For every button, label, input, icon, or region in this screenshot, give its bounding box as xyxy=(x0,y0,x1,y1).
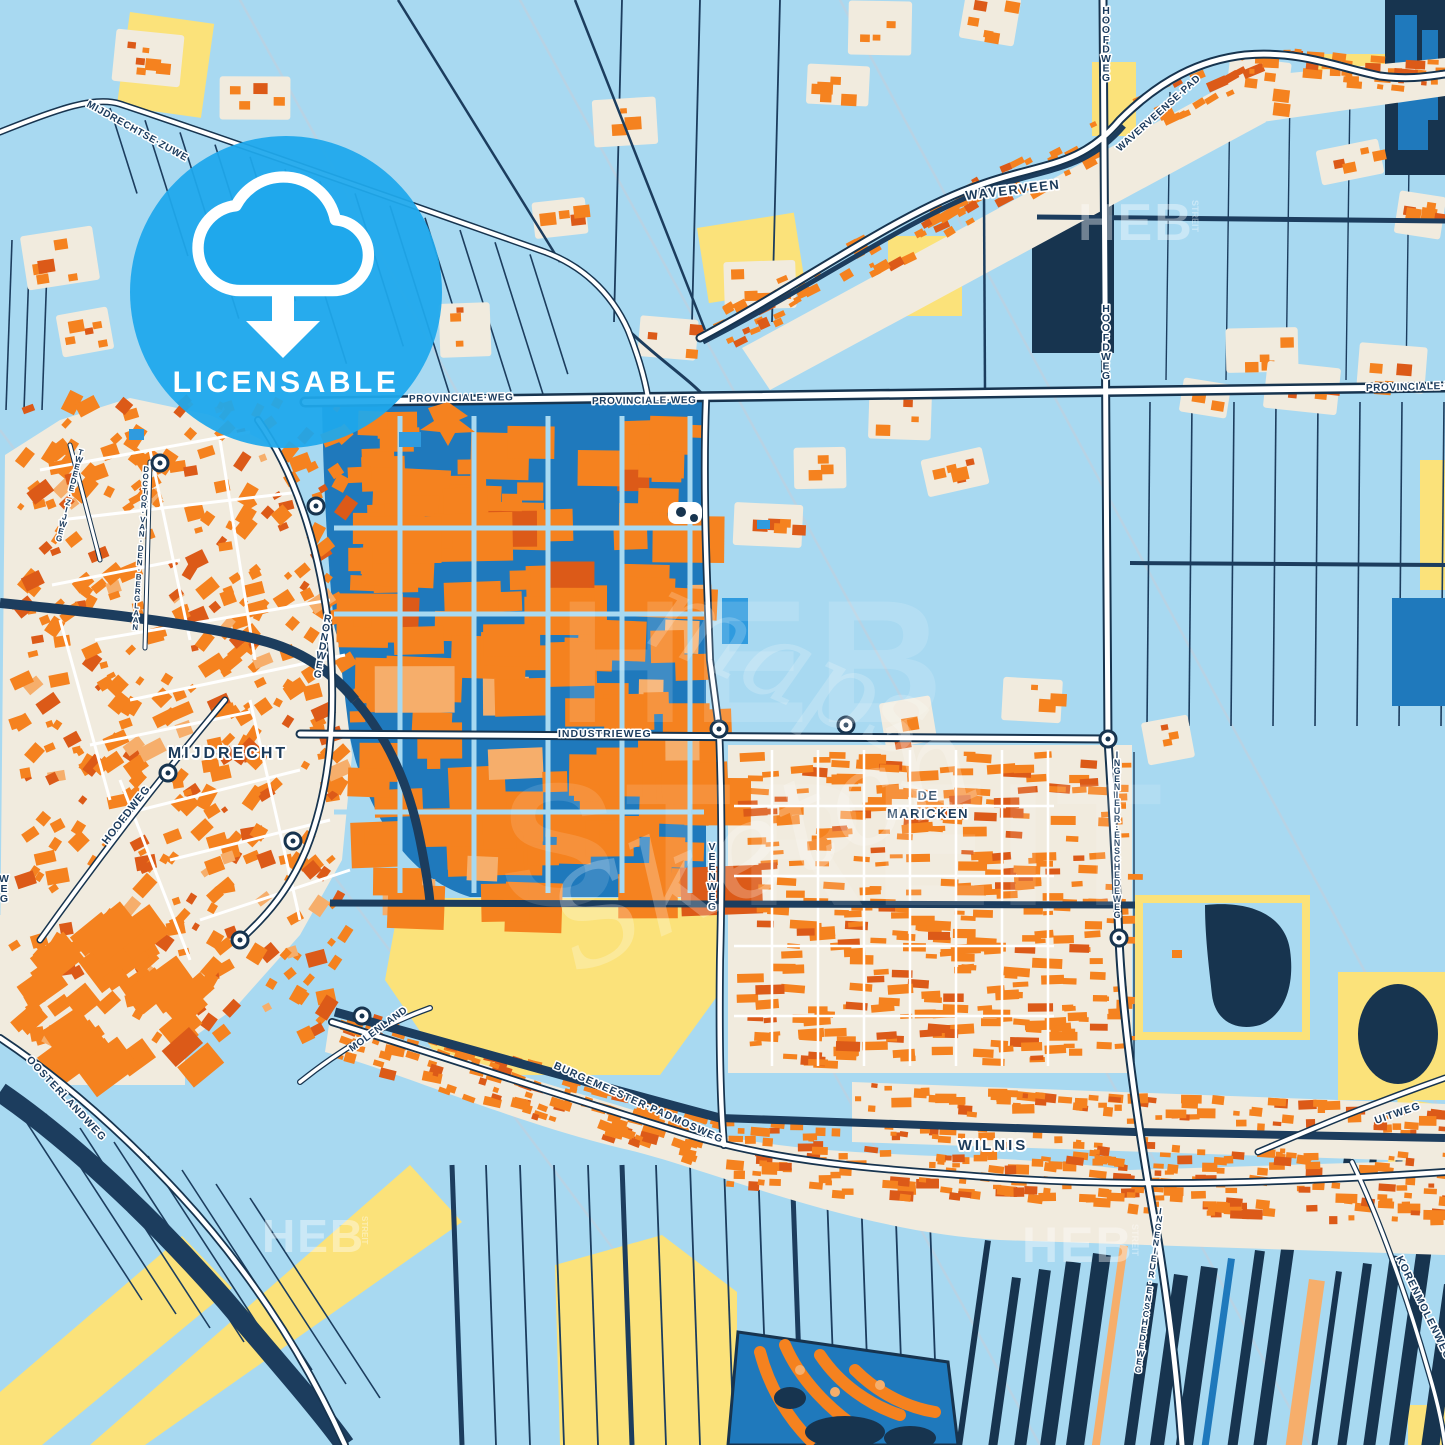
building xyxy=(769,1179,781,1186)
building xyxy=(731,269,744,279)
building xyxy=(1197,1149,1205,1155)
building xyxy=(803,1133,817,1140)
building xyxy=(737,994,759,1003)
building xyxy=(1166,1110,1187,1119)
building xyxy=(750,1127,770,1137)
building xyxy=(510,570,531,590)
building xyxy=(813,1141,823,1147)
building xyxy=(1203,1201,1216,1207)
building xyxy=(1299,1187,1311,1193)
building xyxy=(860,34,870,42)
svg-text:STREIT: STREIT xyxy=(1190,200,1200,233)
building xyxy=(365,823,399,845)
building xyxy=(467,856,499,882)
building xyxy=(1378,1183,1396,1191)
building xyxy=(1378,1201,1394,1209)
building xyxy=(997,1187,1002,1191)
building xyxy=(1094,1156,1108,1165)
building xyxy=(811,84,825,95)
building xyxy=(1397,1151,1408,1158)
building xyxy=(253,83,267,94)
road-label-provinciale-weg-2: PROVINCIALE·WEG xyxy=(592,395,697,407)
building xyxy=(855,1096,861,1101)
building xyxy=(638,450,684,478)
building xyxy=(755,999,779,1010)
building xyxy=(1114,1105,1121,1111)
building xyxy=(620,108,627,114)
building xyxy=(1212,1095,1225,1105)
watermark-corner-bottom-right: HEB STREIT xyxy=(1022,1217,1140,1273)
building xyxy=(836,1053,856,1060)
building xyxy=(1396,363,1412,376)
building xyxy=(1419,1116,1437,1126)
building xyxy=(745,1136,756,1144)
building xyxy=(921,1087,930,1096)
building xyxy=(559,210,570,219)
building xyxy=(871,1083,878,1088)
building xyxy=(375,666,455,713)
building xyxy=(1079,1017,1089,1022)
building xyxy=(783,1054,797,1060)
building xyxy=(1094,1149,1100,1154)
building xyxy=(127,41,136,48)
building xyxy=(819,1175,832,1183)
building xyxy=(936,1154,947,1163)
building xyxy=(1004,1191,1010,1196)
building xyxy=(682,425,704,438)
building xyxy=(750,1041,762,1047)
building xyxy=(762,1138,773,1147)
building xyxy=(36,273,49,284)
building xyxy=(891,1132,897,1136)
building xyxy=(818,455,829,464)
building xyxy=(1127,1204,1138,1215)
building xyxy=(1393,1123,1402,1130)
building xyxy=(1388,1156,1394,1161)
building xyxy=(1225,1188,1237,1193)
building xyxy=(919,1029,941,1037)
building xyxy=(726,1181,734,1187)
building xyxy=(932,1047,953,1056)
building xyxy=(1370,55,1385,63)
building xyxy=(417,722,462,758)
building xyxy=(1021,1042,1042,1051)
svg-text:HEB: HEB xyxy=(262,1210,365,1262)
svg-text:HEB: HEB xyxy=(1078,194,1194,252)
building xyxy=(952,1163,960,1167)
building xyxy=(1022,1093,1028,1098)
farm-parcel xyxy=(20,225,100,290)
building xyxy=(1262,1208,1275,1217)
download-arrow-stem xyxy=(272,295,294,323)
building xyxy=(19,767,31,778)
building xyxy=(440,537,453,549)
building xyxy=(1428,1183,1434,1187)
building xyxy=(1335,1193,1357,1203)
building xyxy=(1090,958,1103,964)
building xyxy=(792,525,806,536)
building xyxy=(1062,1029,1075,1034)
building xyxy=(748,1181,759,1191)
watermark-corner-top-right: HEB STREIT xyxy=(1078,194,1200,252)
building xyxy=(932,1134,939,1140)
building xyxy=(1214,1157,1228,1166)
building xyxy=(1249,69,1254,74)
building xyxy=(830,76,841,85)
building xyxy=(456,341,464,347)
building xyxy=(744,291,757,301)
building xyxy=(938,1136,951,1143)
building xyxy=(1155,1115,1162,1120)
building xyxy=(850,955,874,965)
building xyxy=(1273,102,1291,117)
building xyxy=(1436,1110,1445,1121)
building xyxy=(68,273,78,281)
building xyxy=(1211,400,1225,412)
building xyxy=(1013,1103,1021,1109)
building xyxy=(1262,58,1279,68)
building xyxy=(1404,1193,1412,1199)
building xyxy=(1273,1121,1282,1126)
building xyxy=(1013,1187,1024,1197)
building xyxy=(142,47,149,53)
map-poster: #g-yellow rect,#g-yellow polygon{fill:#F… xyxy=(0,0,1445,1445)
building xyxy=(737,973,764,983)
building xyxy=(1411,1210,1420,1215)
building xyxy=(824,1028,846,1037)
building xyxy=(1076,1140,1082,1145)
building xyxy=(929,1095,937,1103)
building xyxy=(1090,972,1106,980)
building xyxy=(1421,81,1427,86)
farm-parcel xyxy=(439,302,492,358)
building xyxy=(874,969,889,975)
building xyxy=(1043,1188,1051,1194)
building xyxy=(1313,1100,1327,1107)
building xyxy=(1296,1154,1311,1165)
building xyxy=(1282,1114,1294,1123)
building xyxy=(136,67,146,75)
building xyxy=(809,470,823,481)
building xyxy=(926,1179,939,1188)
building xyxy=(841,94,857,107)
building xyxy=(1107,1193,1125,1202)
building xyxy=(502,494,522,512)
building xyxy=(1035,1092,1046,1099)
building xyxy=(758,1179,765,1186)
building xyxy=(1280,337,1294,348)
building xyxy=(427,757,440,769)
building xyxy=(1069,944,1089,953)
building xyxy=(239,101,250,109)
building xyxy=(769,1128,780,1134)
building xyxy=(876,424,891,436)
building xyxy=(781,951,802,959)
map-image[interactable]: #g-yellow rect,#g-yellow polygon{fill:#F… xyxy=(0,0,1445,1445)
building xyxy=(1405,60,1425,70)
building xyxy=(820,93,832,102)
building xyxy=(780,519,791,528)
building xyxy=(951,954,975,962)
building xyxy=(1438,1126,1445,1131)
building xyxy=(1207,1211,1215,1216)
svg-text:HEB: HEB xyxy=(1022,1217,1134,1273)
building xyxy=(812,1147,828,1155)
building xyxy=(1377,84,1384,90)
building xyxy=(903,400,913,408)
building xyxy=(230,86,241,94)
building xyxy=(456,307,463,313)
city-label-wilnis: WILNIS xyxy=(958,1137,1029,1154)
building xyxy=(1153,1163,1164,1168)
road-label-hoofdweg-mid: HOOFDWEG xyxy=(1101,303,1111,382)
building xyxy=(498,591,522,611)
building xyxy=(899,1194,911,1202)
building xyxy=(1177,1155,1192,1164)
building xyxy=(1064,1006,1076,1012)
building xyxy=(929,1162,936,1168)
building xyxy=(1423,1210,1445,1220)
building xyxy=(1064,1044,1075,1049)
building xyxy=(274,97,285,106)
building xyxy=(880,1150,892,1157)
building xyxy=(974,1155,988,1162)
building xyxy=(1079,1194,1096,1203)
building xyxy=(1231,1151,1244,1159)
building xyxy=(1058,1096,1072,1103)
building xyxy=(839,1153,848,1160)
building xyxy=(1249,1109,1256,1116)
building xyxy=(1426,202,1436,210)
building xyxy=(1233,1111,1240,1116)
building xyxy=(867,976,884,983)
svg-text:STREIT: STREIT xyxy=(360,1216,369,1245)
building xyxy=(1329,1216,1337,1224)
building xyxy=(876,1031,897,1040)
building xyxy=(1392,1216,1398,1221)
building xyxy=(884,1086,892,1091)
building xyxy=(911,416,919,422)
building xyxy=(613,528,647,551)
building xyxy=(973,1048,994,1058)
building xyxy=(402,495,439,517)
building xyxy=(1090,1024,1108,1031)
building xyxy=(1073,1102,1083,1111)
building xyxy=(1369,363,1382,374)
licensable-badge: LICENSABLE xyxy=(130,136,442,448)
building xyxy=(1264,72,1276,82)
building xyxy=(1242,1209,1263,1220)
building xyxy=(1276,1152,1283,1157)
building xyxy=(1302,68,1322,79)
building xyxy=(868,1105,876,1112)
building xyxy=(1348,76,1359,83)
building xyxy=(1244,78,1257,89)
building xyxy=(1245,362,1259,373)
building xyxy=(1165,1170,1174,1174)
road-label-provinciale-weg-1: PROVINCIALE·WEG xyxy=(409,392,514,405)
building xyxy=(1050,693,1067,706)
building xyxy=(790,1124,803,1130)
building xyxy=(949,1097,965,1105)
building xyxy=(943,993,963,1001)
building xyxy=(1272,88,1290,103)
building xyxy=(899,1131,908,1137)
building xyxy=(1217,1168,1225,1174)
building xyxy=(1160,1152,1171,1157)
building xyxy=(1155,1170,1162,1176)
building xyxy=(1312,1184,1324,1190)
building xyxy=(1260,354,1270,362)
building xyxy=(136,58,146,66)
building xyxy=(483,624,540,657)
building xyxy=(1096,1042,1111,1050)
badge-label: LICENSABLE xyxy=(173,366,400,399)
building xyxy=(821,464,834,474)
building xyxy=(348,466,372,483)
building xyxy=(347,767,390,797)
building xyxy=(1404,1122,1419,1130)
farm-parcel xyxy=(793,447,846,489)
farm-parcel xyxy=(111,29,184,88)
building xyxy=(1236,1120,1247,1127)
building xyxy=(494,678,549,717)
building xyxy=(443,486,489,514)
building xyxy=(1331,1182,1340,1189)
building xyxy=(1427,59,1438,64)
building xyxy=(1230,1201,1242,1207)
building xyxy=(1257,1168,1268,1176)
building xyxy=(1024,1186,1037,1195)
city-label-mijdrecht: MIJDRECHT xyxy=(168,745,288,762)
building xyxy=(648,332,658,340)
building xyxy=(1172,1145,1181,1153)
building xyxy=(809,1182,823,1190)
farm-parcel xyxy=(848,0,912,55)
building xyxy=(1438,1196,1445,1207)
building xyxy=(1348,1215,1354,1220)
building xyxy=(37,259,55,274)
road-label-hoofdweg-top: HOOFDWEG xyxy=(1101,5,1111,84)
building xyxy=(145,58,161,71)
building xyxy=(886,21,895,28)
building xyxy=(945,1155,952,1160)
building xyxy=(1030,1055,1043,1060)
building xyxy=(1093,995,1107,1002)
building xyxy=(1032,1159,1044,1167)
building xyxy=(348,548,372,571)
building xyxy=(1257,1123,1265,1131)
building xyxy=(891,1097,911,1107)
building xyxy=(1013,981,1029,987)
building xyxy=(779,1163,792,1171)
building xyxy=(762,1166,778,1175)
building xyxy=(624,116,641,130)
building xyxy=(967,1111,977,1117)
building xyxy=(842,1188,854,1194)
building xyxy=(1063,978,1077,985)
building xyxy=(686,349,699,359)
building xyxy=(952,1154,965,1162)
building xyxy=(1268,1098,1287,1107)
building xyxy=(832,1128,841,1136)
building xyxy=(1274,1156,1292,1166)
building xyxy=(1218,1205,1227,1210)
building xyxy=(1054,1136,1062,1143)
building xyxy=(921,991,940,999)
building xyxy=(365,516,442,563)
building xyxy=(759,1160,767,1166)
building xyxy=(1306,1205,1317,1212)
building xyxy=(755,984,784,994)
building xyxy=(539,212,557,226)
building xyxy=(1036,1196,1043,1201)
building xyxy=(882,1180,898,1189)
building xyxy=(1191,1191,1206,1199)
building xyxy=(1088,1095,1098,1101)
building xyxy=(752,1171,761,1176)
building xyxy=(1424,1188,1437,1194)
building xyxy=(981,1018,1001,1026)
building xyxy=(1028,1003,1053,1012)
building xyxy=(893,1049,916,1058)
building xyxy=(988,1089,1007,1097)
building xyxy=(726,1159,744,1171)
building xyxy=(353,615,371,627)
building xyxy=(873,35,881,41)
building xyxy=(1048,1161,1063,1169)
building xyxy=(1004,974,1017,979)
road-label-provinciale-weg-3: PROVINCIALE·WEG xyxy=(1366,380,1445,394)
building xyxy=(1396,1185,1407,1191)
building xyxy=(734,1171,745,1180)
building xyxy=(577,450,624,486)
building xyxy=(782,964,804,973)
building xyxy=(450,313,461,322)
building xyxy=(1031,685,1038,691)
building xyxy=(862,1041,888,1050)
building xyxy=(738,1128,745,1134)
building xyxy=(1405,1158,1414,1167)
building xyxy=(754,1032,779,1042)
farm-parcel xyxy=(56,306,115,357)
building xyxy=(1069,1049,1082,1056)
building xyxy=(573,204,590,218)
building xyxy=(1181,1095,1202,1104)
building xyxy=(1005,1165,1017,1174)
building xyxy=(1402,1201,1410,1207)
building xyxy=(1197,1108,1216,1118)
building xyxy=(815,1127,825,1136)
watermark-corner-bottom-left: HEB STREIT xyxy=(262,1210,369,1262)
building xyxy=(949,1192,961,1201)
building xyxy=(1127,1192,1136,1198)
building xyxy=(941,949,953,953)
building xyxy=(1103,1107,1113,1117)
building xyxy=(836,1041,860,1052)
svg-text:STREIT: STREIT xyxy=(1130,1224,1140,1257)
building xyxy=(728,1136,743,1143)
building xyxy=(926,954,937,959)
building xyxy=(53,238,68,250)
